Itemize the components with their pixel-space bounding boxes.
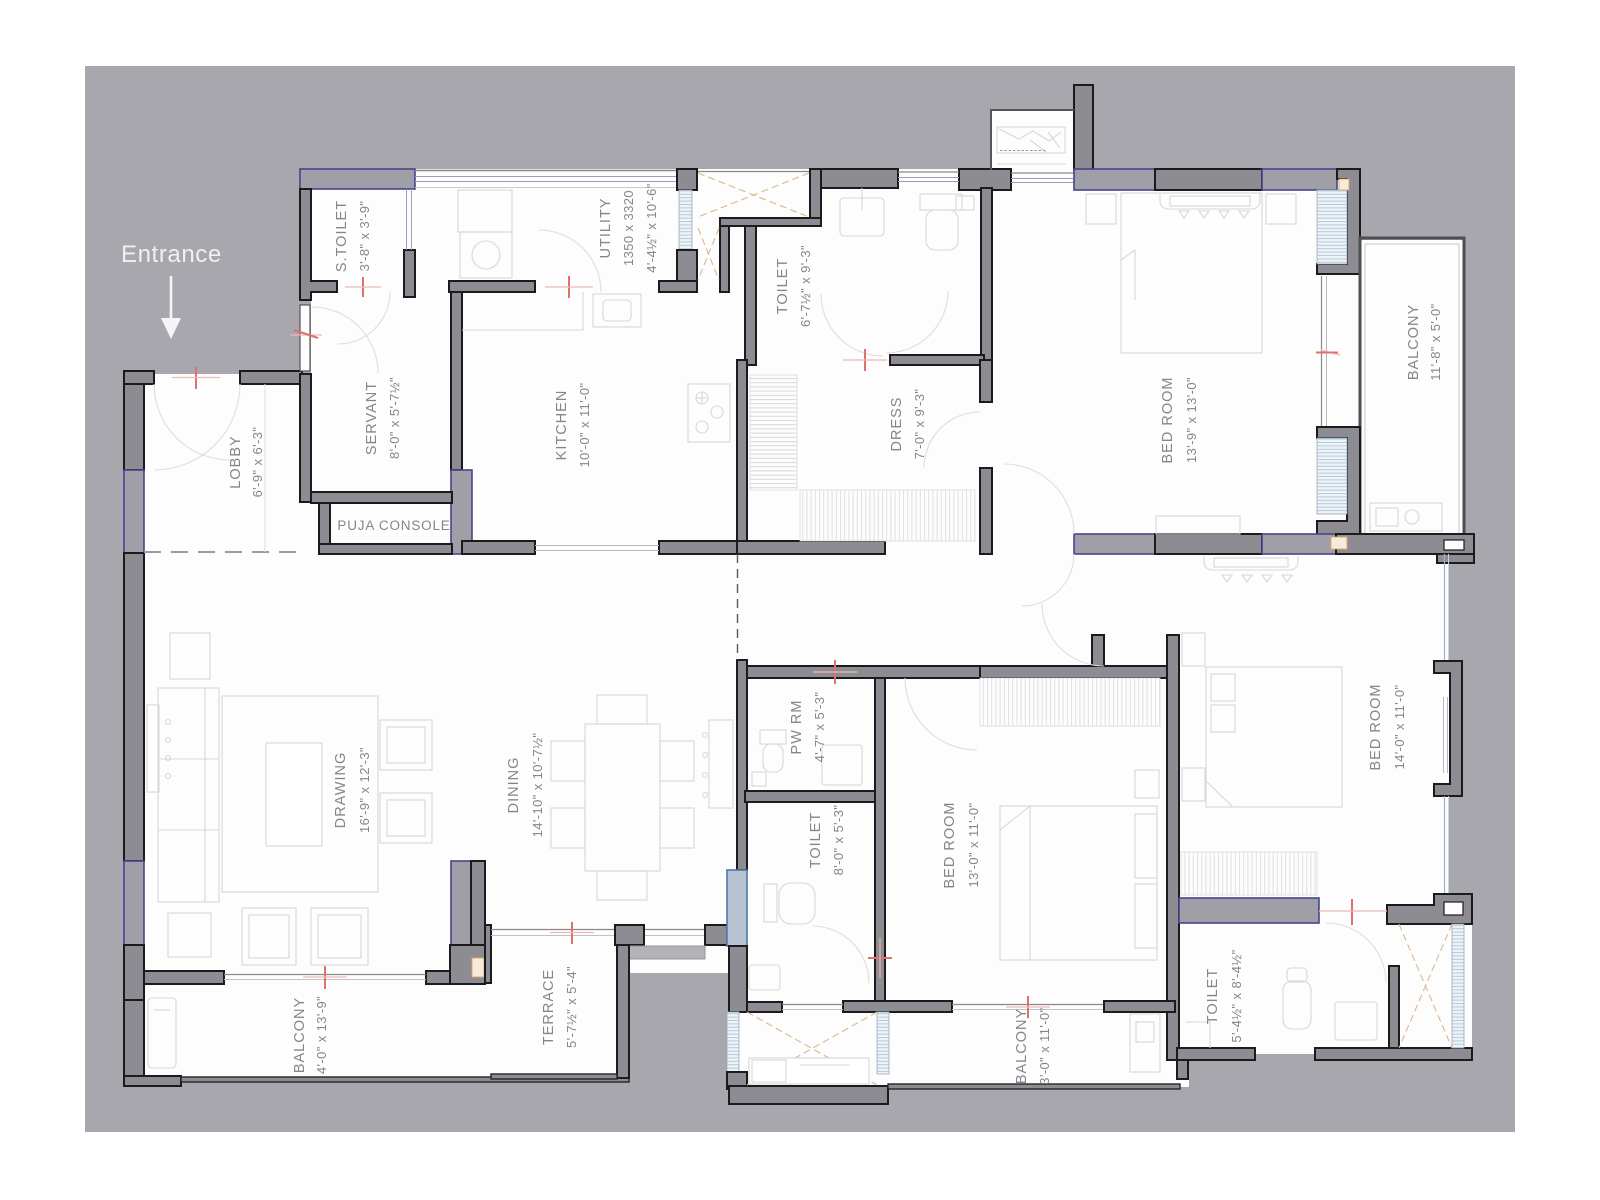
svg-text:SERVANT: SERVANT [364, 381, 380, 455]
svg-text:DRAWING: DRAWING [333, 752, 349, 829]
svg-text:BALCONY: BALCONY [292, 997, 308, 1073]
svg-text:1350 x 3320: 1350 x 3320 [621, 190, 636, 266]
svg-text:BED ROOM: BED ROOM [942, 802, 958, 889]
svg-text:14'-0" x 11'-0": 14'-0" x 11'-0" [1392, 685, 1407, 770]
svg-text:PUJA CONSOLE: PUJA CONSOLE [337, 518, 450, 533]
svg-text:6'-9" x 6'-3": 6'-9" x 6'-3" [250, 427, 265, 498]
svg-text:BED ROOM: BED ROOM [1160, 377, 1176, 464]
svg-text:S.TOILET: S.TOILET [334, 200, 350, 272]
svg-text:KITCHEN: KITCHEN [554, 390, 570, 461]
svg-text:PW RM: PW RM [789, 700, 805, 755]
svg-text:6'-7½" x 9'-3": 6'-7½" x 9'-3" [798, 245, 813, 327]
svg-text:16'-9" x 12'-3": 16'-9" x 12'-3" [357, 747, 372, 833]
svg-text:13'-0" x 11'-0": 13'-0" x 11'-0" [966, 803, 981, 888]
svg-text:Entrance: Entrance [121, 241, 222, 268]
svg-text:LOBBY: LOBBY [228, 435, 244, 488]
svg-text:BED ROOM: BED ROOM [1368, 684, 1384, 771]
svg-text:7'-0" x 9'-3": 7'-0" x 9'-3" [912, 389, 927, 460]
svg-text:3'-0" x 11'-0": 3'-0" x 11'-0" [1037, 1007, 1052, 1084]
svg-text:TOILET: TOILET [1205, 968, 1221, 1025]
svg-text:TERRACE: TERRACE [541, 969, 557, 1045]
svg-text:13'-9" x 13'-0": 13'-9" x 13'-0" [1184, 377, 1199, 463]
svg-text:UTILITY: UTILITY [598, 198, 614, 259]
svg-text:TOILET: TOILET [775, 258, 791, 315]
svg-text:4'-0" x 13'-9": 4'-0" x 13'-9" [314, 996, 329, 1074]
svg-text:BALCONY: BALCONY [1406, 304, 1422, 380]
svg-text:11'-8" x 5'-0": 11'-8" x 5'-0" [1428, 303, 1443, 380]
svg-text:3'-8" x 3'-9": 3'-8" x 3'-9" [357, 201, 372, 272]
svg-text:TOILET: TOILET [808, 812, 824, 869]
svg-text:4'-7" x 5'-3": 4'-7" x 5'-3" [812, 692, 827, 763]
svg-text:BALCONY: BALCONY [1014, 1008, 1030, 1084]
svg-text:10'-0" x 11'-0": 10'-0" x 11'-0" [577, 383, 592, 468]
svg-text:4'-4½" x 10'-6": 4'-4½" x 10'-6" [644, 183, 659, 273]
svg-text:5'-4½" x 8'-4½": 5'-4½" x 8'-4½" [1229, 949, 1244, 1042]
svg-text:DRESS: DRESS [889, 397, 905, 452]
svg-text:DINING: DINING [506, 757, 522, 814]
svg-text:8'-0" x 5'-3": 8'-0" x 5'-3" [831, 805, 846, 876]
svg-text:8'-0" x 5'-7½": 8'-0" x 5'-7½" [387, 377, 402, 459]
svg-text:14'-10" x 10'-7½": 14'-10" x 10'-7½" [530, 733, 545, 838]
svg-text:5'-7½" x 5'-4": 5'-7½" x 5'-4" [564, 966, 579, 1048]
